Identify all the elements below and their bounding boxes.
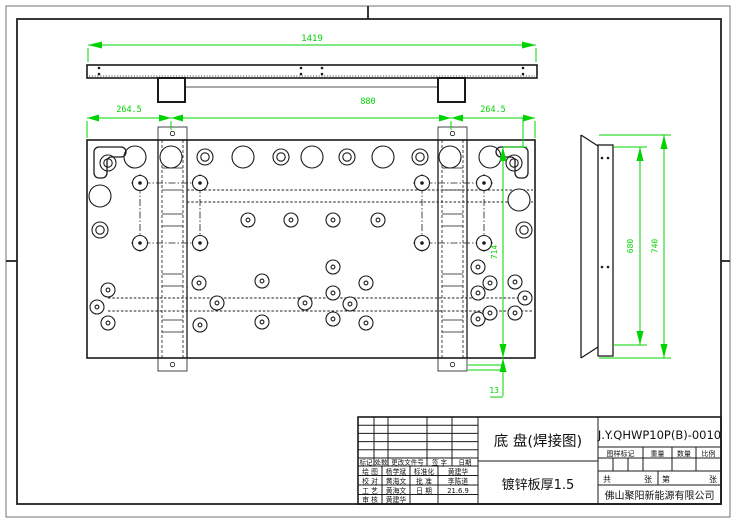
front-view — [87, 127, 535, 371]
small-hole-center — [260, 320, 264, 324]
drawing-number: J.Y.QHWP10P(B)-0010 — [597, 428, 721, 442]
rev-header-sign: 签 字 — [432, 458, 448, 467]
approval-role2: 批 准 — [416, 477, 432, 486]
dim-text-side-outer: 740 — [651, 239, 660, 254]
ring-hole-inner — [510, 159, 518, 167]
small-hole-center — [198, 323, 202, 327]
small-hole-center — [246, 218, 250, 222]
small-hole-center — [215, 301, 219, 305]
small-hole-center — [303, 301, 307, 305]
ring-hole-inner — [416, 153, 424, 161]
ring-hole-inner — [96, 226, 104, 234]
large-hole — [89, 185, 111, 207]
hole-dot — [300, 73, 303, 76]
bolt-hole-center — [198, 241, 202, 245]
tab-hole — [170, 131, 174, 135]
small-hole-center — [488, 311, 492, 315]
hole-dot — [321, 73, 324, 76]
approval-name2: 李陈道 — [448, 477, 469, 486]
hole-dot — [607, 266, 610, 269]
approval-role2: 标准化 — [414, 467, 435, 476]
approval-role: 工 艺 — [362, 487, 378, 495]
hole-dot — [607, 157, 610, 160]
hole-dot — [601, 266, 604, 269]
bolt-hole-center — [138, 181, 142, 185]
small-hole-center — [331, 291, 335, 295]
stamp-header-mark: 图样标记 — [607, 449, 635, 458]
side-view: 680 740 — [581, 135, 671, 358]
large-hole — [479, 146, 501, 168]
approval-role: 校 对 — [362, 477, 378, 486]
arrowhead-icon — [637, 331, 644, 345]
dim-text-center-span: 880 — [360, 97, 375, 107]
sheet-total-unit: 张 — [644, 475, 652, 484]
approval-name2: 21.6.9 — [447, 487, 469, 495]
approval-name2: 黄建华 — [448, 467, 469, 476]
small-hole-center — [197, 281, 201, 285]
rev-header-date: 日期 — [459, 459, 473, 467]
material-note: 镀锌板厚1.5 — [502, 477, 575, 493]
tab-hole — [450, 362, 454, 366]
ring-hole-inner — [520, 226, 528, 234]
hole-dot — [522, 67, 525, 70]
plate-outline — [87, 140, 535, 358]
small-hole-center — [364, 321, 368, 325]
bolt-hole-center — [198, 181, 202, 185]
tab-hole — [450, 131, 454, 135]
dim-13: 13 — [468, 358, 507, 397]
large-hole — [160, 146, 182, 168]
arrowhead-icon — [661, 135, 668, 149]
hole-dot — [601, 157, 604, 160]
small-hole-center — [348, 302, 352, 306]
part-name: 底 盘(焊接图) — [494, 432, 582, 450]
top-view — [87, 65, 537, 102]
arrowhead-icon — [451, 115, 463, 122]
arrowhead-icon — [522, 42, 536, 49]
cad-canvas: 1419 264.5 880 264.5 714 — [0, 0, 736, 524]
small-hole-center — [513, 311, 517, 315]
small-hole-center — [289, 218, 293, 222]
top-view-feet — [158, 78, 465, 102]
large-hole — [439, 146, 461, 168]
dim-text-side-inner: 680 — [626, 239, 635, 254]
bolt-hole-center — [420, 241, 424, 245]
approval-role: 审 核 — [362, 495, 378, 504]
small-hole-center — [364, 281, 368, 285]
revision-table: 标记 处数 更改文件号 签 字 日期 绘 图 杨学斌 标准化 黄建华 校 对 黄… — [358, 417, 478, 504]
sheet-total-label: 共 — [603, 475, 611, 484]
small-hole-center — [476, 317, 480, 321]
dim-text-plate-height: 714 — [490, 245, 499, 260]
side-plate-edge — [598, 145, 613, 356]
arrowhead-icon — [88, 42, 102, 49]
small-hole-center — [95, 305, 99, 309]
dim-text-tab-offset: 13 — [489, 386, 499, 395]
ring-hole-inner — [343, 153, 351, 161]
small-hole-center — [476, 265, 480, 269]
small-hole-center — [476, 291, 480, 295]
drawing-sheet: 1419 264.5 880 264.5 714 — [0, 0, 736, 524]
approval-name: 黄建华 — [386, 495, 407, 504]
ring-hole-inner — [201, 153, 209, 161]
hole-dot — [98, 73, 101, 76]
dim-text-right-offset: 264.5 — [480, 105, 506, 115]
title-block: 标记 处数 更改文件号 签 字 日期 绘 图 杨学斌 标准化 黄建华 校 对 黄… — [358, 417, 721, 504]
small-hole-center — [488, 281, 492, 285]
dim-1419: 1419 — [88, 34, 536, 62]
stamp-table: J.Y.QHWP10P(B)-0010 图样标记 重量 数量 比例 共 张 第 … — [597, 428, 721, 502]
large-hole — [232, 146, 254, 168]
hole-dot — [300, 67, 303, 70]
bolt-hole-center — [138, 241, 142, 245]
stiffener-tab-top — [438, 127, 467, 140]
sheet-no-label: 第 — [662, 474, 670, 484]
side-flange-bend-bottom — [581, 347, 598, 358]
stiffener-tab-top — [158, 127, 187, 140]
small-hole-center — [331, 317, 335, 321]
arrowhead-icon — [439, 115, 451, 122]
dim-text-total-length: 1419 — [301, 34, 323, 44]
side-flange-bend-top — [581, 135, 598, 146]
rev-header-count: 处数 — [375, 458, 389, 467]
rev-header-mark: 标记 — [360, 458, 374, 467]
approval-name: 黄海文 — [386, 486, 407, 495]
top-view-holes — [98, 67, 525, 76]
arrowhead-icon — [171, 115, 183, 122]
small-hole-center — [106, 321, 110, 325]
arrowhead-icon — [87, 115, 99, 122]
large-hole — [301, 146, 323, 168]
small-hole-center — [260, 279, 264, 283]
bolt-hole-center — [420, 181, 424, 185]
company-name: 佛山聚阳新能源有限公司 — [605, 489, 715, 502]
small-hole-center — [523, 296, 527, 300]
stiffener-tab-bottom — [438, 358, 467, 371]
stamp-header-weight: 重量 — [651, 450, 665, 458]
small-hole-center — [331, 218, 335, 222]
small-hole-center — [376, 218, 380, 222]
rev-header-docno: 更改文件号 — [391, 458, 424, 467]
small-hole-center — [513, 280, 517, 284]
arrowhead-icon — [159, 115, 171, 122]
foot-channel — [158, 78, 185, 102]
foot-channel — [438, 78, 465, 102]
approval-role: 绘 图 — [362, 467, 378, 476]
stiffener-tab-bottom — [158, 358, 187, 371]
dim-top-widths: 264.5 880 264.5 — [87, 97, 535, 138]
stamp-header-scale: 比例 — [702, 449, 716, 458]
small-hole-center — [106, 288, 110, 292]
tab-hole — [170, 362, 174, 366]
large-hole — [372, 146, 394, 168]
hole-dot — [98, 67, 101, 70]
dim-text-left-offset: 264.5 — [116, 105, 142, 115]
arrowhead-icon — [637, 147, 644, 161]
small-hole-center — [331, 265, 335, 269]
approval-name: 杨学斌 — [386, 467, 407, 476]
approval-name: 黄海文 — [386, 477, 407, 486]
approval-role2: 日 期 — [416, 487, 432, 495]
arrowhead-icon — [523, 115, 535, 122]
ring-hole-inner — [104, 159, 112, 167]
side-view-holes — [601, 157, 610, 269]
large-hole — [124, 146, 146, 168]
stamp-header-qty: 数量 — [677, 449, 691, 458]
bolt-hole-center — [482, 181, 486, 185]
hole-dot — [522, 73, 525, 76]
sheet-no-unit: 张 — [709, 475, 717, 484]
large-hole — [508, 189, 530, 211]
ring-hole-inner — [277, 153, 285, 161]
bolt-hole-center — [482, 241, 486, 245]
hole-dot — [321, 67, 324, 70]
arrowhead-icon — [661, 344, 668, 358]
